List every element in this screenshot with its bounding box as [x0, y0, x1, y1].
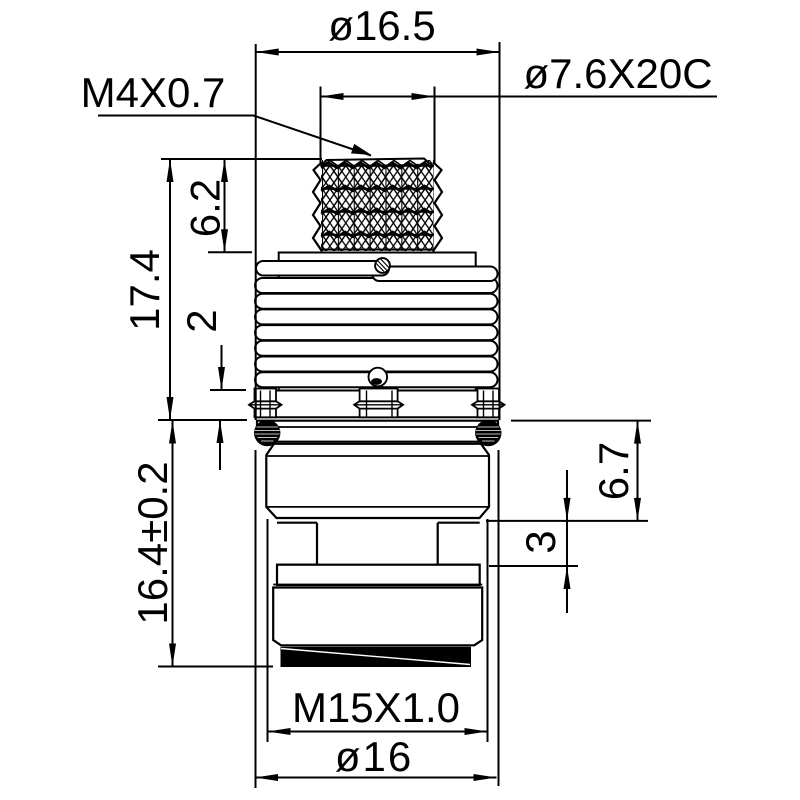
svg-text:6.2: 6.2: [182, 179, 229, 237]
svg-text:ø16.5: ø16.5: [328, 2, 435, 49]
svg-text:ø7.6X20C: ø7.6X20C: [523, 50, 712, 97]
svg-text:3: 3: [517, 530, 564, 553]
svg-text:M15X1.0: M15X1.0: [292, 684, 460, 731]
svg-text:2: 2: [178, 309, 225, 332]
svg-text:6.7: 6.7: [590, 442, 637, 500]
svg-text:17.4: 17.4: [121, 249, 168, 331]
svg-text:M4X0.7: M4X0.7: [81, 69, 226, 116]
svg-text:ø16: ø16: [335, 733, 413, 780]
svg-text:16.4±0.2: 16.4±0.2: [129, 461, 176, 624]
